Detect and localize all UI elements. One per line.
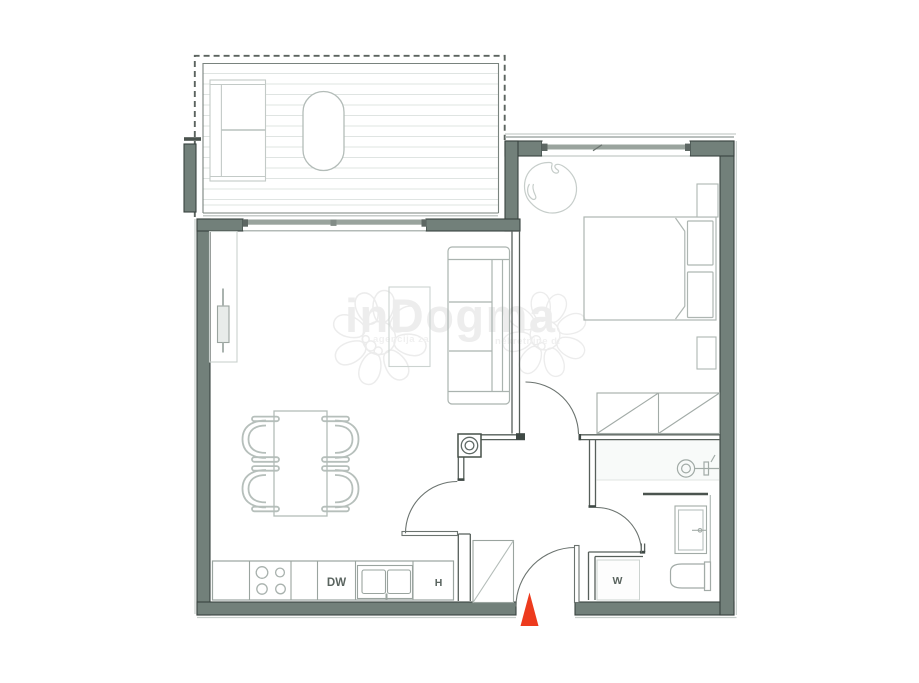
svg-text:W: W — [613, 575, 623, 587]
svg-text:nekretnine d.: nekretnine d. — [495, 336, 561, 347]
svg-text:H: H — [435, 577, 443, 589]
svg-text:agencija za: agencija za — [373, 334, 429, 345]
svg-text:DW: DW — [327, 577, 346, 589]
